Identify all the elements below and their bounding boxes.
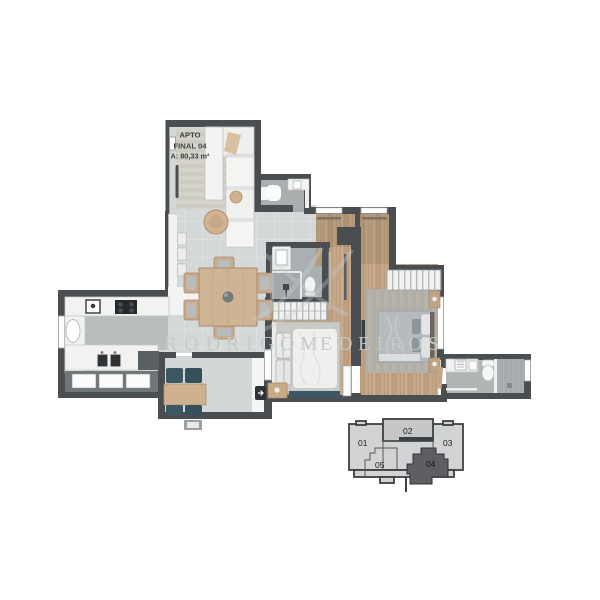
svg-text:FINAL 04: FINAL 04 [174, 142, 208, 151]
svg-text:RODRIGO MEDEIROS: RODRIGO MEDEIROS [164, 333, 439, 355]
svg-text:A: 80,33 m²: A: 80,33 m² [171, 152, 210, 161]
svg-text:01: 01 [358, 438, 368, 448]
svg-text:04: 04 [426, 459, 436, 469]
svg-text:APTO: APTO [180, 131, 201, 140]
svg-text:03: 03 [443, 438, 453, 448]
svg-text:05: 05 [375, 460, 385, 470]
svg-text:02: 02 [403, 426, 413, 436]
